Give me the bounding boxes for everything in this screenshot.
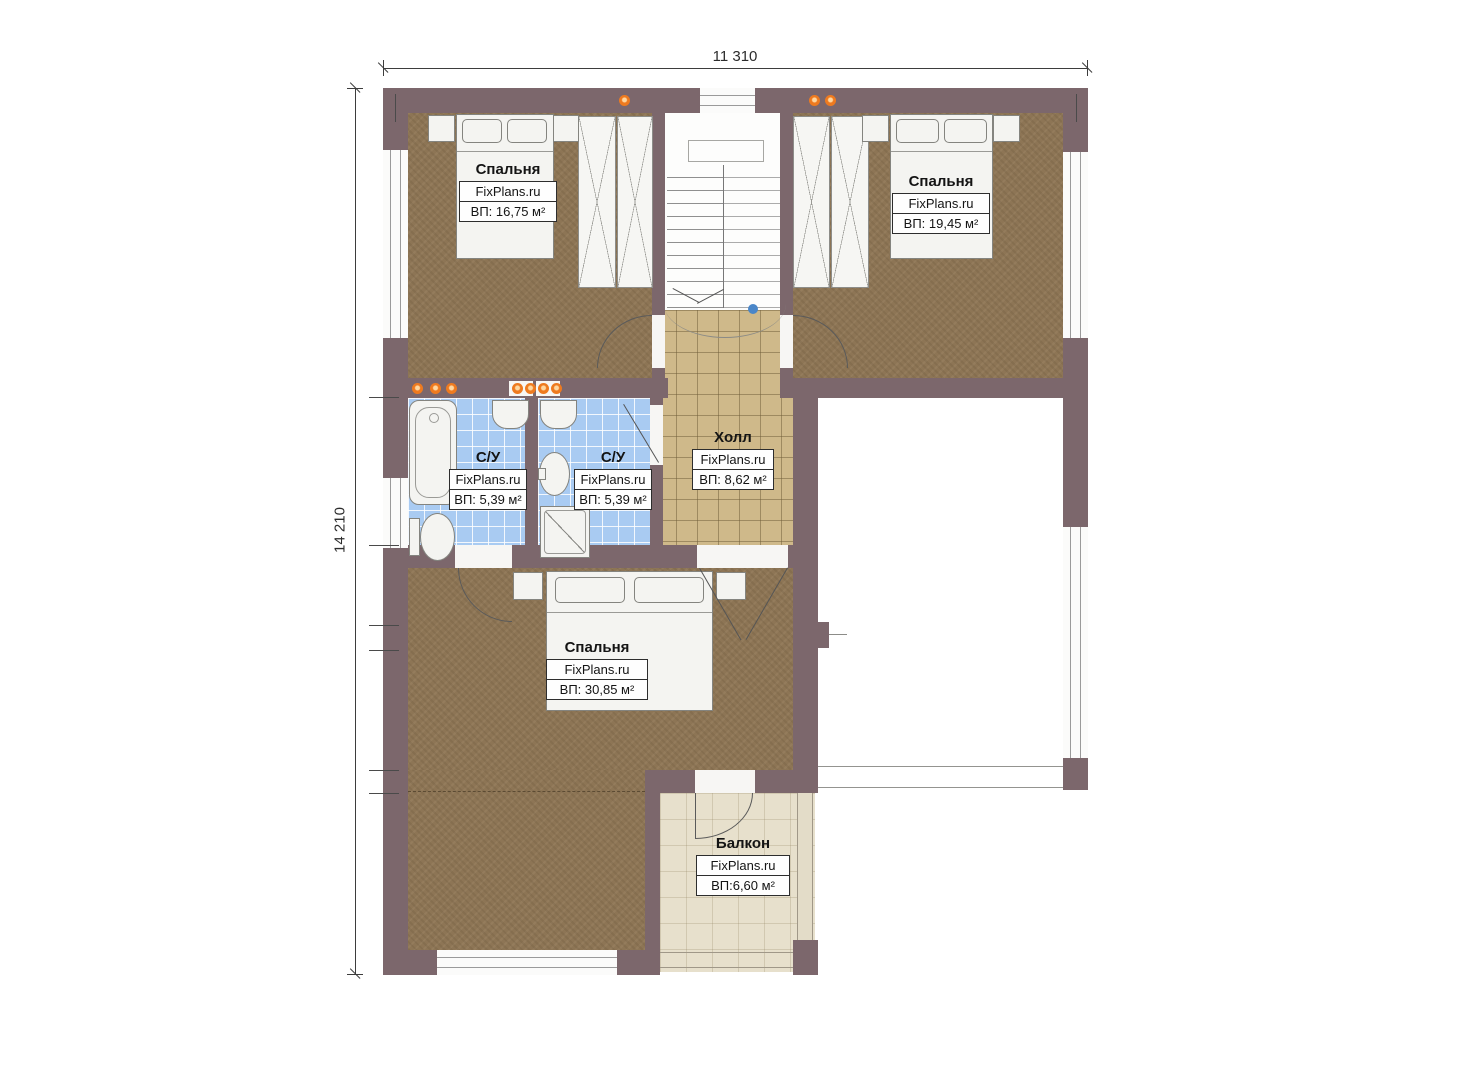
wardrobe (578, 116, 616, 288)
wall-light-icon (446, 383, 457, 394)
window (1063, 152, 1088, 338)
axis-tick (369, 397, 399, 398)
room-label-bathroom-left: С/У FixPlans.ru ВП: 5,39 м² (449, 450, 527, 510)
room-area: ВП: 30,85 м² (547, 680, 647, 699)
sink-faucet (538, 468, 546, 480)
room-label-bedroom-bottom: Спальня FixPlans.ru ВП: 30,85 м² (546, 640, 648, 700)
nightstand (513, 572, 543, 600)
room-area: ВП: 5,39 м² (575, 490, 651, 509)
room-label-bedroom-top-left: Спальня FixPlans.ru ВП: 16,75 м² (459, 162, 557, 222)
watermark: FixPlans.ru (450, 470, 526, 490)
wall (383, 950, 437, 975)
window (437, 950, 617, 975)
wall (755, 770, 818, 793)
nightstand (862, 115, 889, 142)
wardrobe (793, 116, 830, 288)
dimension-label-width: 11 310 (713, 48, 758, 65)
room-name: С/У (574, 450, 652, 466)
pillow (896, 119, 939, 143)
axis-tick (1076, 94, 1077, 122)
door-opening (455, 545, 512, 568)
void-parapet (818, 766, 1063, 788)
door-opening (695, 770, 755, 793)
wall-light-icon (538, 383, 549, 394)
pillow (555, 577, 625, 603)
room-label-hall: Холл FixPlans.ru ВП: 8,62 м² (692, 430, 774, 490)
floor-plan: 11 310 14 210 (0, 0, 1474, 1080)
watermark: FixPlans.ru (893, 194, 989, 214)
blanket-line (547, 612, 712, 613)
chimney-block (815, 622, 829, 648)
nightstand (552, 115, 579, 142)
dimension-line-left (355, 88, 356, 975)
wall-light-icon (551, 383, 562, 394)
wardrobe (617, 116, 653, 288)
dimension-label-height: 14 210 (332, 507, 349, 553)
axis-tick (369, 793, 399, 794)
wall (780, 113, 793, 315)
axis-tick (369, 625, 399, 626)
wall (652, 113, 665, 315)
wall (383, 88, 700, 113)
wall-light-icon (412, 383, 423, 394)
balcony-right-railing (797, 793, 813, 940)
pillow (462, 119, 502, 143)
room-name: Спальня (892, 174, 990, 190)
room-name: Спальня (459, 162, 557, 178)
room-name: Балкон (696, 836, 790, 852)
hall-floor (655, 310, 793, 545)
watermark: FixPlans.ru (575, 470, 651, 490)
level-marker-dot (748, 304, 758, 314)
room-name: Холл (692, 430, 774, 446)
axis-tick (369, 650, 399, 651)
watermark: FixPlans.ru (547, 660, 647, 680)
stair-landing (688, 140, 764, 162)
pillow (944, 119, 987, 143)
wall (755, 88, 1088, 113)
wall (617, 950, 660, 975)
dimension-line-top (383, 68, 1088, 69)
balcony-bottom-railing (660, 952, 793, 968)
stair-divider (723, 165, 724, 308)
door-opening (780, 315, 793, 368)
pillow (634, 577, 704, 603)
nightstand (993, 115, 1020, 142)
wall-light-icon (525, 383, 536, 394)
window (700, 88, 755, 113)
wall-light-icon (619, 95, 630, 106)
axis-tick (369, 545, 399, 546)
stair-flight (667, 165, 723, 308)
shower (540, 506, 590, 558)
room-area: ВП: 5,39 м² (450, 490, 526, 509)
axis-tick (369, 770, 399, 771)
axis-tick (395, 94, 396, 122)
ceiling-slope-dashed-line (408, 791, 645, 792)
wall (793, 378, 818, 790)
nightstand (716, 572, 746, 600)
room-area: ВП: 16,75 м² (460, 202, 556, 221)
chimney-vent-line (829, 634, 847, 635)
stair-flight (724, 165, 780, 308)
blanket-line (891, 151, 992, 152)
window (383, 478, 408, 548)
room-name: Спальня (546, 640, 648, 656)
room-name: С/У (449, 450, 527, 466)
toilet-tank (409, 518, 420, 556)
room-label-bedroom-top-right: Спальня FixPlans.ru ВП: 19,45 м² (892, 174, 990, 234)
watermark: FixPlans.ru (693, 450, 773, 470)
wall (652, 368, 665, 398)
bedroom-bottom-floor-extension (408, 770, 645, 950)
wall (645, 770, 660, 975)
room-area: ВП:6,60 м² (697, 876, 789, 895)
room-label-bathroom-right: С/У FixPlans.ru ВП: 5,39 м² (574, 450, 652, 510)
toilet (420, 513, 455, 561)
watermark: FixPlans.ru (697, 856, 789, 876)
wall-light-icon (430, 383, 441, 394)
room-area: ВП: 19,45 м² (893, 214, 989, 233)
bathtub-drain (429, 413, 439, 423)
sink (540, 400, 577, 429)
wall (780, 378, 1088, 398)
door-opening (652, 315, 665, 368)
wall-light-icon (512, 383, 523, 394)
wall (780, 368, 793, 398)
sink (492, 400, 529, 429)
nightstand (428, 115, 455, 142)
window (383, 150, 408, 338)
door-opening (697, 545, 788, 568)
wall (650, 398, 663, 405)
wall-light-icon (809, 95, 820, 106)
room-area: ВП: 8,62 м² (693, 470, 773, 489)
wall (793, 940, 818, 975)
watermark: FixPlans.ru (460, 182, 556, 202)
window (1063, 527, 1088, 758)
pillow (507, 119, 547, 143)
shower-tray (544, 510, 586, 554)
wall-light-icon (825, 95, 836, 106)
room-label-balcony: Балкон FixPlans.ru ВП:6,60 м² (696, 836, 790, 896)
blanket-line (457, 151, 553, 152)
